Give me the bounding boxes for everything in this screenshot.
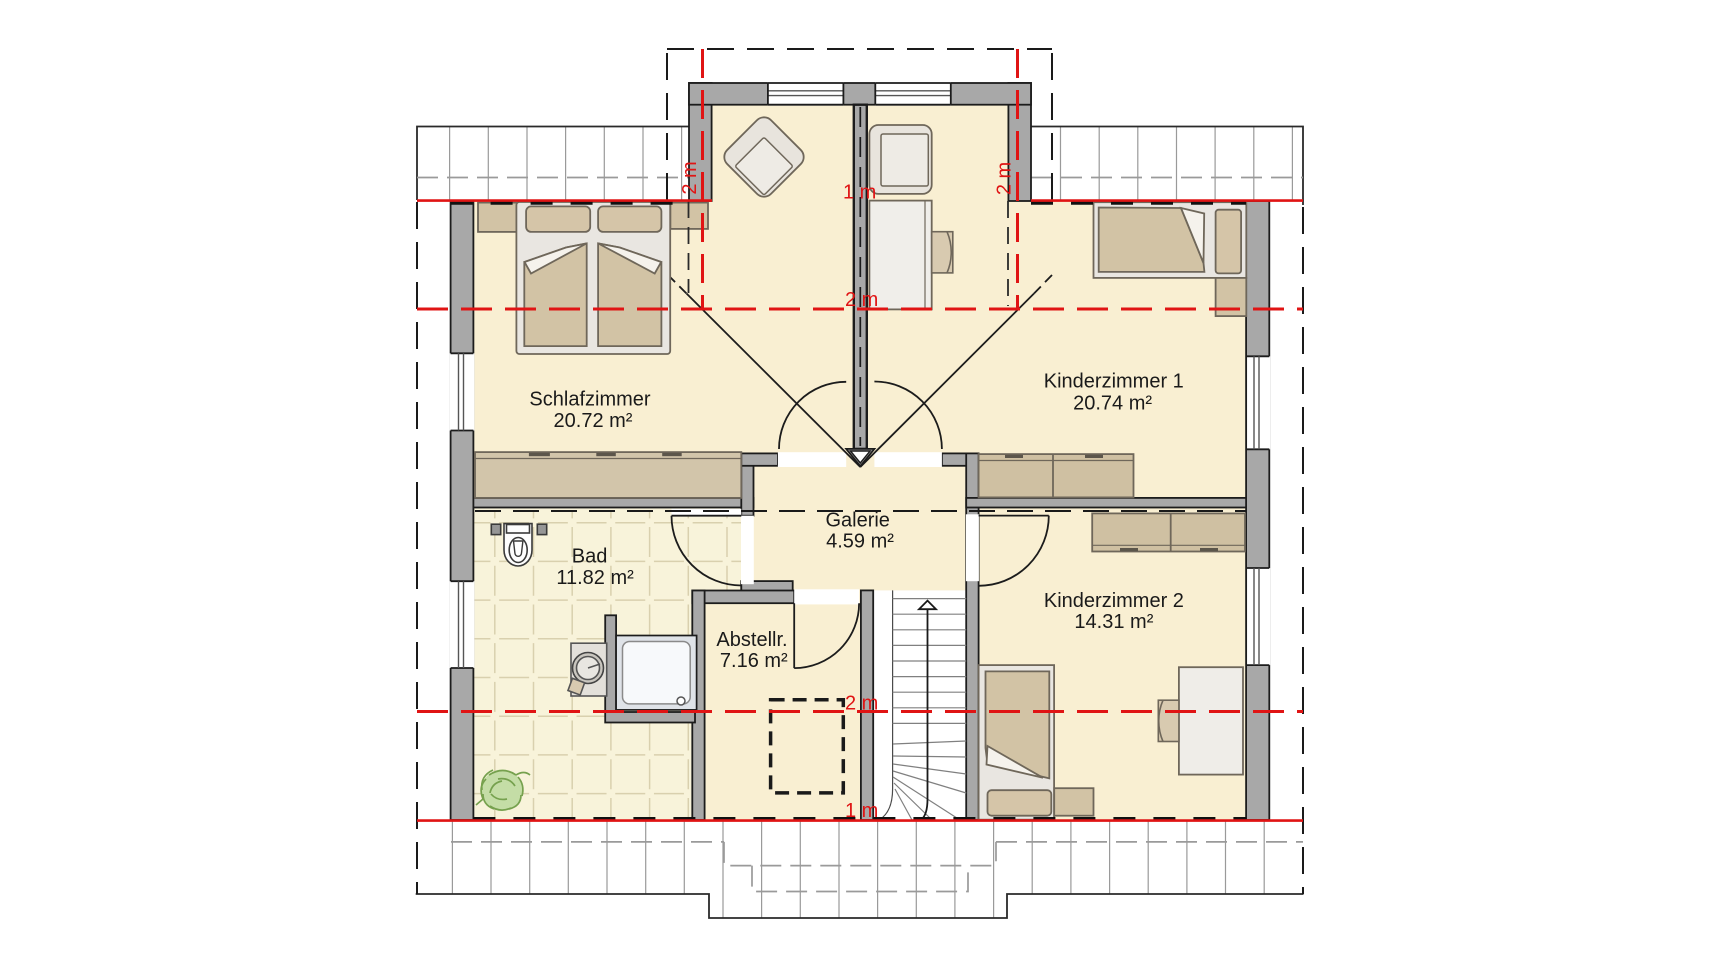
svg-text:4.59 m²: 4.59 m² [826,531,894,553]
svg-text:11.82 m²: 11.82 m² [556,567,634,589]
svg-text:Kinderzimmer 1: Kinderzimmer 1 [1044,371,1184,393]
svg-text:Schlafzimmer: Schlafzimmer [529,389,650,411]
svg-text:2 m: 2 m [845,693,878,715]
svg-text:7.16 m²: 7.16 m² [720,650,788,672]
svg-text:2 m: 2 m [679,161,701,194]
svg-text:1 m: 1 m [845,800,878,822]
svg-text:Bad: Bad [572,546,608,568]
svg-text:1 m: 1 m [843,182,876,204]
svg-text:Kinderzimmer 2: Kinderzimmer 2 [1044,590,1184,612]
svg-text:2 m: 2 m [993,162,1015,195]
svg-text:14.31 m²: 14.31 m² [1074,611,1153,633]
svg-text:Galerie: Galerie [825,510,889,532]
svg-text:Abstellr.: Abstellr. [716,629,787,651]
svg-text:20.74 m²: 20.74 m² [1073,393,1152,415]
svg-text:20.72 m²: 20.72 m² [554,410,633,432]
svg-text:2 m: 2 m [845,289,878,311]
